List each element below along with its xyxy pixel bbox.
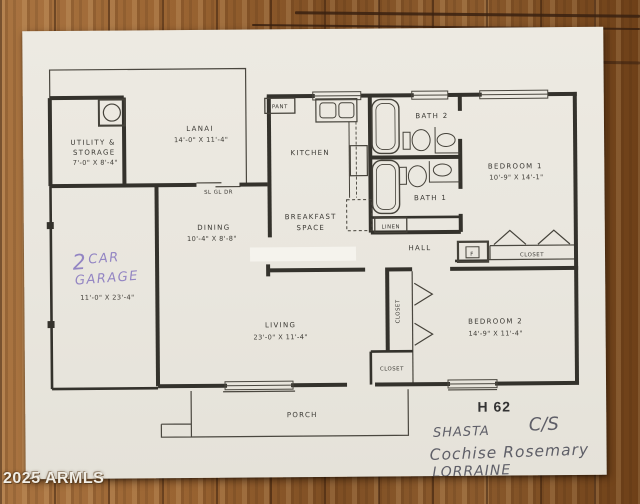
bath-east-wall: [460, 95, 461, 232]
bed1-closet-label: CLOSET: [520, 252, 544, 258]
floorplan-paper: LANAI 14'-0" X 11'-4" UTILITY & STORAGE …: [22, 27, 607, 480]
note-line2: Cochise Rosemary: [429, 441, 589, 464]
closet-door-icon: [494, 230, 570, 245]
dining-label: DINING: [197, 224, 230, 232]
kitchen-west-wall: [269, 96, 270, 237]
bed2-closet-label: CLOSET: [395, 299, 401, 323]
range-dashed-box: [347, 200, 372, 231]
linen-label: LINEN: [381, 224, 400, 230]
porch-label: PORCH: [287, 411, 318, 419]
closet-door-icon: [414, 283, 432, 345]
utility-label-1: UTILITY &: [70, 139, 115, 147]
handwriting-notes: SHASTA C/S Cochise Rosemary LORRAINE: [428, 413, 590, 480]
note-line3: LORRAINE: [432, 462, 511, 479]
whiteout-patch: [250, 247, 356, 262]
note-cs: C/S: [528, 414, 559, 436]
breakfast-label-2: SPACE: [296, 224, 325, 232]
bedroom1-label: BEDROOM 1: [488, 162, 543, 170]
bathtub-inner: [376, 103, 395, 149]
lanai-dims: 14'-0" X 11'-4": [174, 136, 228, 144]
bathtub-inner: [376, 164, 395, 209]
sink-icon: [433, 164, 451, 176]
kitchen-label: KITCHEN: [290, 149, 329, 157]
kitchen-counter-line: [349, 122, 350, 198]
living-dims: 23'-0" X 11'-4": [253, 333, 307, 341]
bath1-label: BATH 1: [414, 194, 447, 202]
lanai-dining-wall: [50, 184, 267, 186]
bedroom2-dims: 14'-9" X 11'-4": [468, 329, 522, 337]
pantry-label: PANT: [272, 104, 288, 110]
breakfast-south-wall: [268, 264, 365, 277]
sink-bowl-icon: [320, 103, 336, 118]
hall-label: HALL: [408, 244, 431, 252]
garage-walls: [50, 185, 158, 389]
toilet-icon: [412, 130, 430, 151]
plan-code: H 62: [477, 398, 511, 414]
garage-hand-word1: CAR: [88, 250, 121, 267]
south-wall: [158, 383, 579, 386]
kitchen-sink-counter: [316, 99, 357, 122]
bed2-closet-side: [412, 271, 413, 384]
toilet-tank-icon: [403, 132, 410, 149]
utility-dims: 7'-0" X 8'-4": [73, 159, 118, 167]
washer-icon: [99, 99, 125, 125]
sink-icon: [437, 133, 455, 146]
bath2-label: BATH 2: [415, 112, 448, 120]
living-label: LIVING: [265, 321, 296, 329]
utility-label-2: STORAGE: [73, 149, 115, 157]
handwriting-garage: 2 CAR GARAGE: [72, 246, 140, 289]
vanity-counter: [435, 127, 460, 153]
fridge-icon: [350, 146, 367, 176]
living-west-wall: [156, 185, 158, 386]
garage-hand-digit: 2: [72, 250, 87, 275]
breakfast-label-1: BREAKFAST: [285, 213, 337, 221]
toilet-icon: [408, 166, 426, 187]
bedroom1-dims: 10'-9" X 14'-1": [489, 173, 543, 181]
lanai-label: LANAI: [186, 125, 214, 133]
sliding-door-label: SL GL DR: [204, 190, 233, 196]
lanai-outline: [50, 69, 247, 186]
bed2-closet-wall: [387, 271, 388, 351]
upper-cabinet-dashed: [356, 122, 357, 198]
dining-dims: 10'-4" X 8'-8": [187, 235, 237, 243]
bedroom2-north-wall: [385, 268, 578, 270]
garage-dims: 11'-0" X 23'-4": [80, 293, 134, 301]
entry-closet-label: CLOSET: [380, 366, 404, 372]
toilet-tank-icon: [399, 167, 406, 184]
sink-bowl-icon: [339, 103, 354, 118]
wood-plank-seam: [295, 11, 640, 18]
garage-door-tick: [47, 222, 54, 229]
floorplan-drawing: LANAI 14'-0" X 11'-4" UTILITY & STORAGE …: [22, 27, 607, 480]
porch-outline: [161, 389, 408, 437]
sliding-glass-door-icon: [196, 183, 240, 187]
bedroom2-label: BEDROOM 2: [468, 317, 523, 325]
armls-watermark: 2025 ARMLS: [3, 470, 104, 488]
photo-of-floorplan: { "watermark": "2025 ARMLS", "plan": { "…: [0, 0, 640, 504]
furnace-label: F: [470, 252, 474, 258]
east-wall: [575, 92, 577, 383]
note-name: SHASTA: [433, 424, 490, 441]
garage-door-tick: [48, 321, 55, 328]
washer-drum-icon: [103, 104, 120, 121]
